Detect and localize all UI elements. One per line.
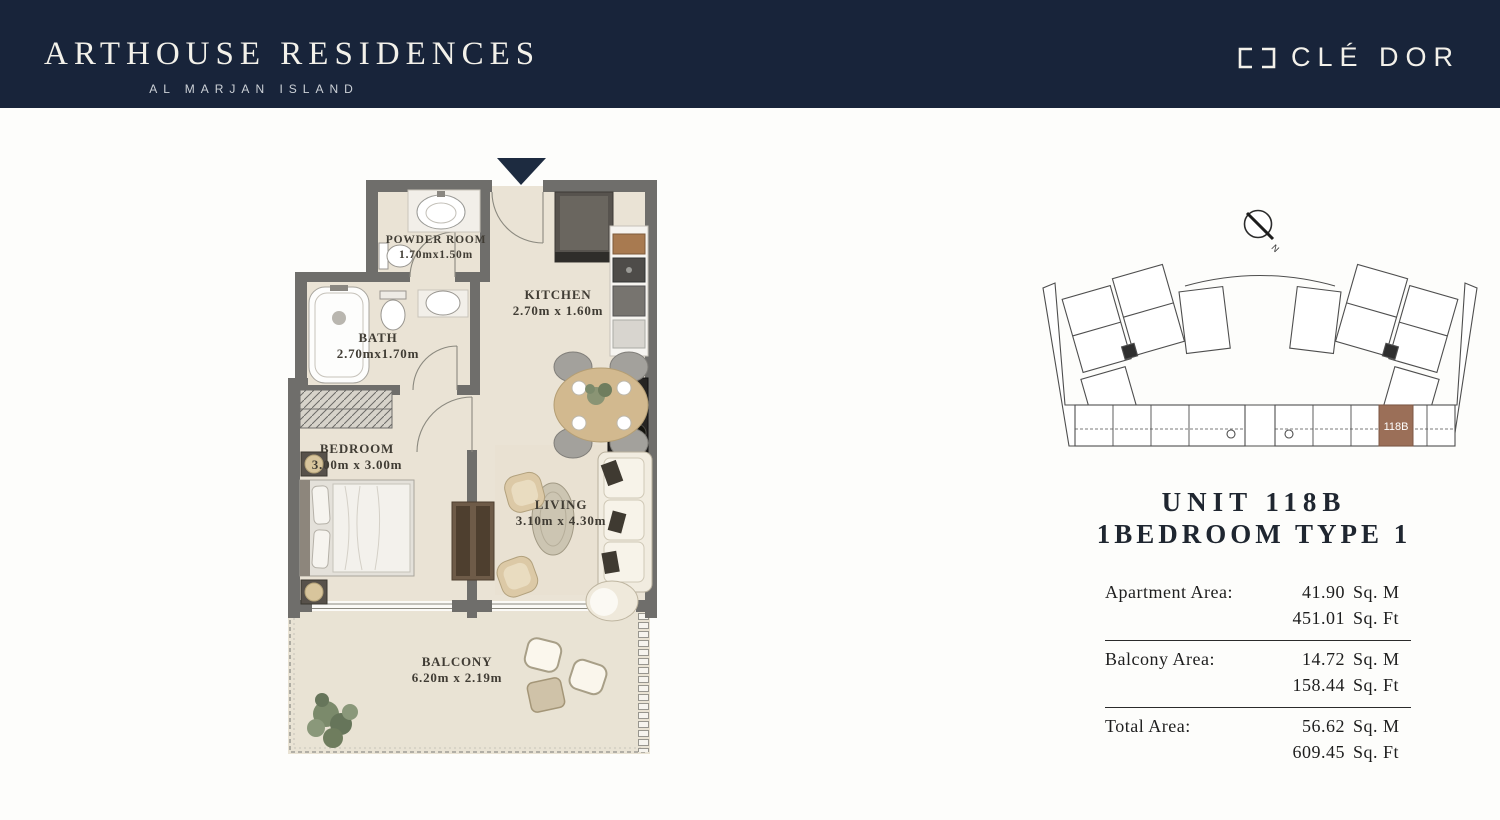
- project-title: ARTHOUSE RESIDENCES: [44, 36, 464, 73]
- area-row-total: Total Area: 56.62 609.45 Sq. M Sq. Ft: [1105, 707, 1411, 774]
- room-label-living: LIVING: [535, 497, 587, 512]
- project-subtitle: AL MARJAN ISLAND: [44, 82, 464, 96]
- developer-brand: CLÉ DOR: [1237, 42, 1460, 73]
- area-units: Sq. M Sq. Ft: [1353, 646, 1411, 698]
- room-dims-living: 3.10m x 4.30m: [516, 513, 607, 528]
- area-values: 56.62 609.45: [1273, 713, 1345, 765]
- tv-unit: [452, 502, 494, 580]
- area-values: 14.72 158.44: [1273, 646, 1345, 698]
- highlighted-unit: 118B: [1379, 405, 1413, 446]
- compass-icon: N: [1245, 211, 1282, 255]
- area-label: Apartment Area:: [1105, 579, 1265, 631]
- header-bar: ARTHOUSE RESIDENCES AL MARJAN ISLAND CLÉ…: [0, 0, 1500, 108]
- area-values: 41.90 451.01: [1273, 579, 1345, 631]
- dining-set: [554, 352, 648, 458]
- room-dims-kitchen: 2.70m x 1.60m: [513, 303, 604, 318]
- room-label-bedroom: BEDROOM: [320, 441, 394, 456]
- balcony-chair: [526, 677, 565, 713]
- project-brand: ARTHOUSE RESIDENCES AL MARJAN ISLAND: [44, 36, 464, 96]
- brochure-page: ARTHOUSE RESIDENCES AL MARJAN ISLAND CLÉ…: [0, 0, 1500, 820]
- bath-toilet: [381, 300, 405, 330]
- cledor-logo-icon: [1237, 46, 1277, 70]
- unit-subtitle: 1BEDROOM TYPE 1: [1086, 518, 1422, 550]
- dining-table: [554, 368, 648, 442]
- area-table: Apartment Area: 41.90 451.01 Sq. M Sq. F…: [1105, 574, 1411, 774]
- room-label-kitchen: KITCHEN: [524, 287, 591, 302]
- balcony-louver-screen: [637, 613, 651, 752]
- area-units: Sq. M Sq. Ft: [1353, 579, 1411, 631]
- room-label-bath: BATH: [358, 330, 397, 345]
- area-label: Balcony Area:: [1105, 646, 1265, 698]
- bed: [300, 480, 414, 576]
- unit-info: UNIT 118B 1BEDROOM TYPE 1: [1086, 486, 1422, 550]
- key-plan: N: [1035, 193, 1485, 461]
- area-row-balcony: Balcony Area: 14.72 158.44 Sq. M Sq. Ft: [1105, 640, 1411, 707]
- area-label: Total Area:: [1105, 713, 1265, 765]
- bath-sink: [426, 291, 460, 315]
- area-units: Sq. M Sq. Ft: [1353, 713, 1411, 765]
- room-label-balcony: BALCONY: [422, 654, 493, 669]
- compass-north-label: N: [1269, 242, 1281, 254]
- powder-sink: [417, 195, 465, 229]
- room-label-powder: POWDER ROOM: [386, 234, 486, 246]
- room-dims-powder: 1.70mx1.50m: [399, 249, 473, 261]
- room-dims-bedroom: 3.00m x 3.00m: [312, 457, 403, 472]
- room-dims-bath: 2.70mx1.70m: [337, 346, 419, 361]
- floor-plan: POWDER ROOM 1.70mx1.50m BATH 2.70mx1.70m…: [250, 146, 690, 774]
- developer-name: CLÉ DOR: [1291, 42, 1460, 73]
- unit-title: UNIT 118B: [1086, 486, 1422, 518]
- entry-arrow: [497, 158, 546, 185]
- room-dims-balcony: 6.20m x 2.19m: [412, 670, 503, 685]
- area-row-apartment: Apartment Area: 41.90 451.01 Sq. M Sq. F…: [1105, 574, 1411, 640]
- highlighted-unit-label: 118B: [1384, 421, 1409, 433]
